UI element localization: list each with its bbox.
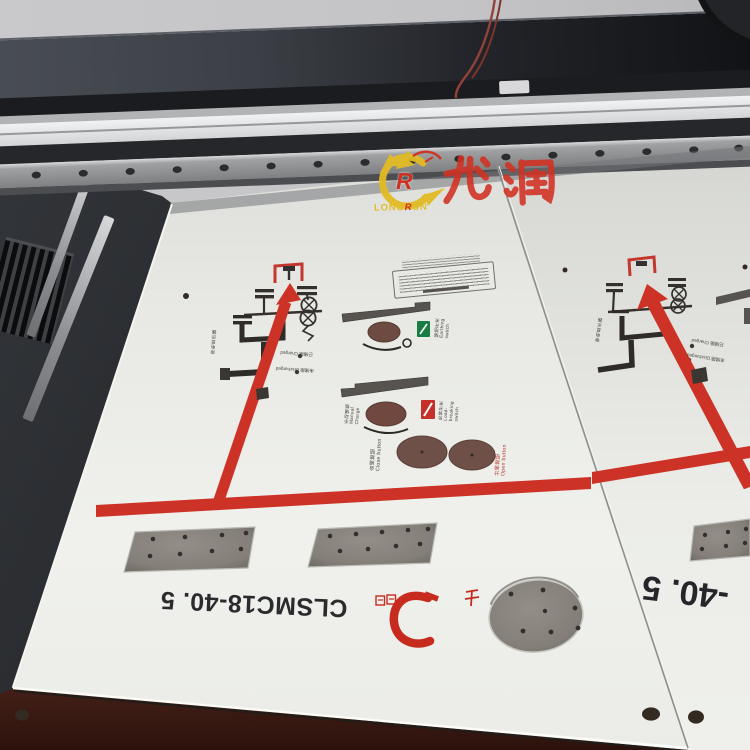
red-stripe-left	[96, 477, 591, 517]
longrun-text: LONGRUN	[374, 201, 444, 213]
label-manual-charge: 手动储能 Manual Charge	[343, 396, 361, 424]
rect-cutouts	[124, 519, 750, 572]
red-arrow-right	[629, 257, 750, 489]
circle-cutout	[485, 573, 586, 657]
brand-cn-glyphs	[445, 157, 552, 203]
label-load-switch: 负荷开关 Load-breaking switch	[437, 391, 461, 421]
label-open-button: 分闸按钮 Open button	[494, 440, 508, 477]
dragon-icon	[382, 150, 445, 206]
label-earth-switch: 接地开关 Earthing switch	[433, 310, 451, 338]
brand-logo-print	[376, 590, 479, 644]
red-arrow-left	[213, 264, 302, 505]
watermark-logo	[0, 0, 750, 260]
busbar-slot	[342, 302, 430, 322]
panel-edge	[13, 688, 687, 748]
registered-mark: ®	[394, 628, 400, 637]
logo-letter: R	[396, 168, 413, 195]
operating-cutouts-left	[363, 321, 495, 470]
photo-flatbed-printer-scene: 带电显示器 已储能 Charged 未储能 Discharged 手动储能 Ma…	[0, 0, 750, 750]
label-close-button: 合闸按钮 Close button	[369, 435, 383, 472]
panel-edge-shadow	[14, 691, 688, 750]
panel-edge	[13, 204, 172, 687]
busbar-slot	[341, 377, 428, 397]
